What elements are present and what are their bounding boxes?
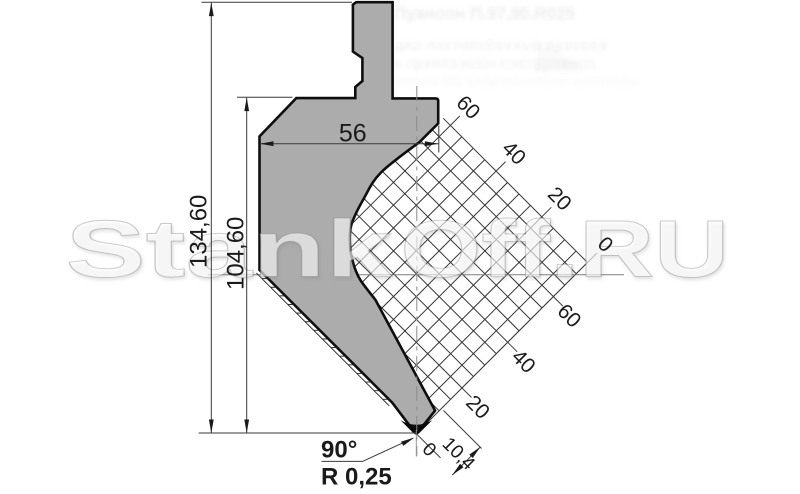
svg-text:56: 56 — [339, 120, 367, 148]
svg-text:134,60: 134,60 — [186, 195, 213, 268]
svg-text:серии R1 классической системы: серии R1 классической системы — [394, 73, 638, 90]
svg-text:для листогибочных прессов: для листогибочных прессов — [394, 37, 607, 54]
svg-text:104,60: 104,60 — [223, 217, 250, 290]
svg-text:Пуансон П.97.90.R025: Пуансон П.97.90.R025 — [394, 4, 575, 23]
svg-text:90°: 90° — [321, 437, 357, 464]
svg-text:Off.RU: Off.RU — [401, 204, 730, 294]
svg-text:R 0,25: R 0,25 — [321, 464, 392, 491]
